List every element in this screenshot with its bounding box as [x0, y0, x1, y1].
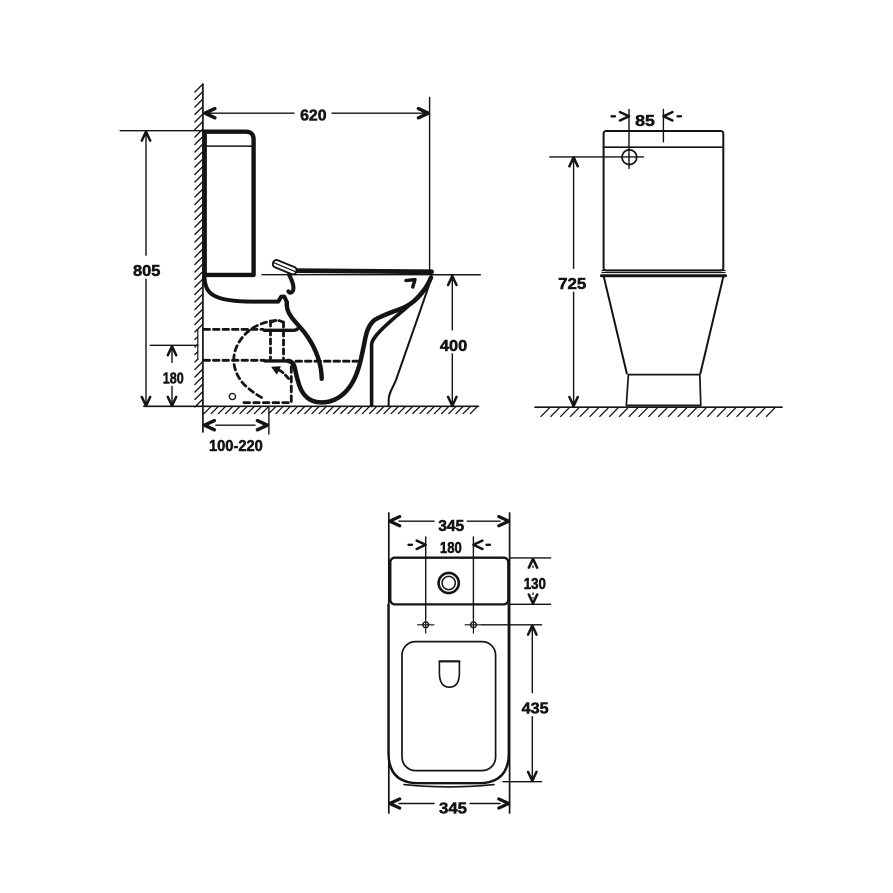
svg-text:85: 85: [635, 113, 655, 130]
svg-text:620: 620: [300, 108, 326, 125]
svg-text:400: 400: [440, 338, 467, 355]
svg-text:345: 345: [438, 518, 464, 535]
svg-text:805: 805: [133, 263, 160, 280]
svg-text:130: 130: [524, 576, 546, 593]
svg-text:180: 180: [163, 370, 184, 387]
svg-text:180: 180: [440, 540, 462, 557]
svg-text:435: 435: [522, 701, 549, 718]
svg-text:725: 725: [558, 276, 586, 293]
svg-text:100-220: 100-220: [209, 438, 263, 455]
svg-text:345: 345: [439, 801, 467, 818]
